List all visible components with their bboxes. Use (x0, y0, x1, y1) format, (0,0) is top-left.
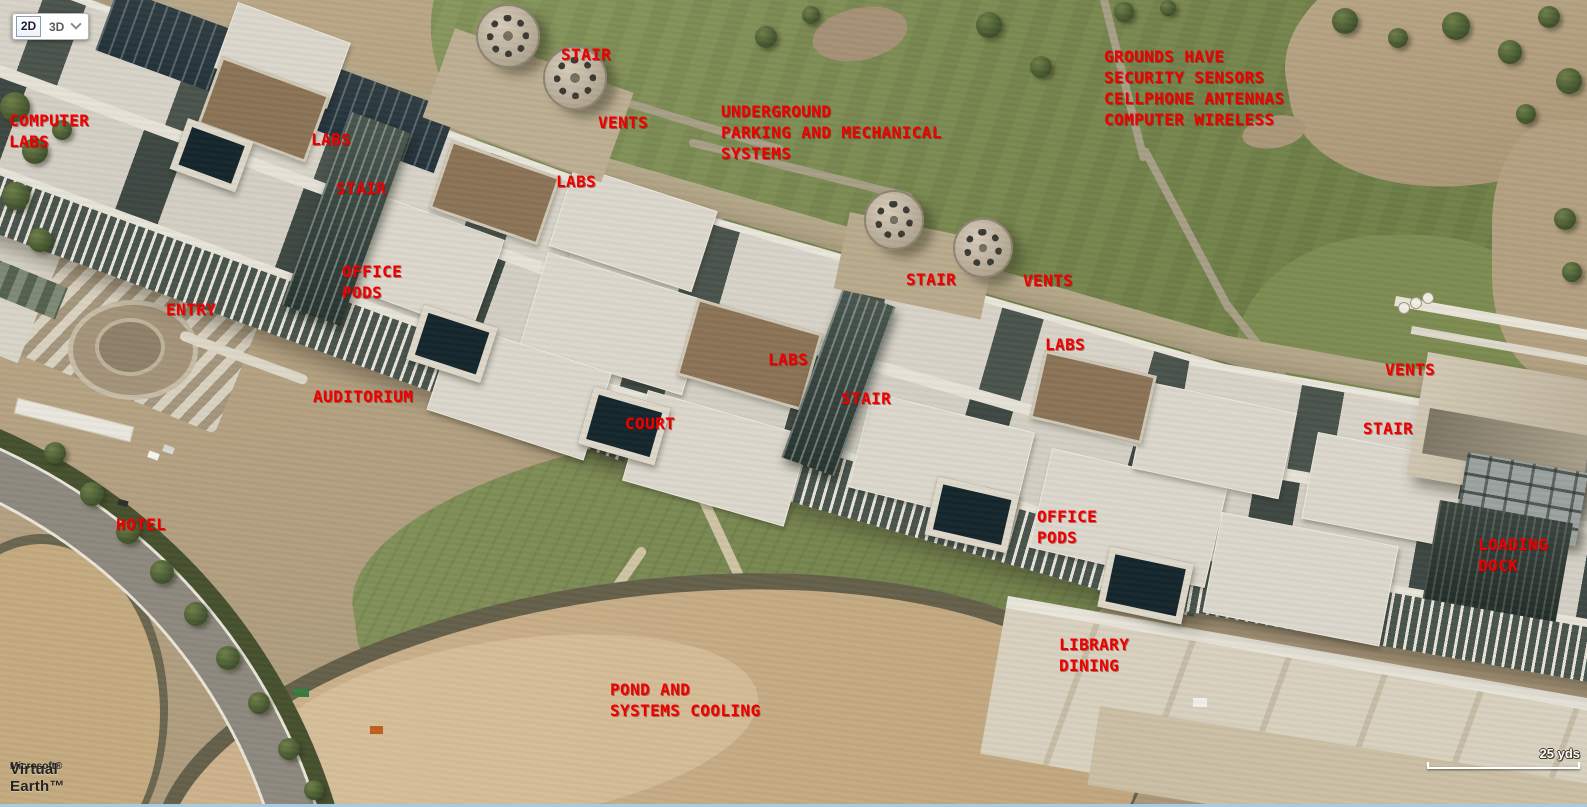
map-label: UNDERGROUND PARKING AND MECHANICAL SYSTE… (721, 101, 942, 164)
map-label: LABS (311, 129, 351, 150)
annotation-layer: COMPUTER LABSSTAIRVENTSLABSSTAIRLABSUNDE… (0, 0, 1587, 807)
map-label: VENTS (598, 112, 648, 133)
map-label: LOADING DOCK (1478, 534, 1548, 576)
map-label: POND AND SYSTEMS COOLING (610, 679, 761, 721)
map-label: STAIR (1363, 418, 1413, 439)
map-label: COMPUTER LABS (9, 110, 89, 152)
map-label: STAIR (906, 269, 956, 290)
mode-3d-button[interactable]: 3D (49, 20, 64, 34)
map-label: LIBRARY DINING (1059, 634, 1129, 676)
map-viewport[interactable]: COMPUTER LABSSTAIRVENTSLABSSTAIRLABSUNDE… (0, 0, 1587, 807)
map-label: STAIR (841, 388, 891, 409)
map-label: STAIR (336, 178, 386, 199)
copyright-notice: © 2006 Microsoft Corporation © 2005 Pict… (1567, 772, 1580, 807)
map-label: STAIR (561, 44, 611, 65)
map-label: OFFICE PODS (1037, 506, 1097, 548)
map-label: LABS (556, 171, 596, 192)
map-label: VENTS (1023, 270, 1073, 291)
view-mode-control[interactable]: 2D 3D (12, 13, 89, 40)
map-label: LABS (768, 349, 808, 370)
scale-bar (1427, 767, 1580, 769)
map-label: AUDITORIUM (313, 386, 413, 407)
map-label: GROUNDS HAVE SECURITY SENSORS CELLPHONE … (1104, 46, 1285, 130)
map-label: LABS (1045, 334, 1085, 355)
map-label: OFFICE PODS (342, 261, 402, 303)
map-label: COURT (625, 413, 675, 434)
chevron-down-icon[interactable] (71, 18, 82, 29)
watermark-virtual-earth: Virtual Earth™ (10, 761, 65, 795)
mode-2d-button[interactable]: 2D (16, 16, 41, 37)
map-label: VENTS (1385, 359, 1435, 380)
scale-label: 25 yds (1540, 746, 1580, 761)
map-label: HOTEL (116, 514, 166, 535)
map-label: ENTRY (166, 299, 216, 320)
